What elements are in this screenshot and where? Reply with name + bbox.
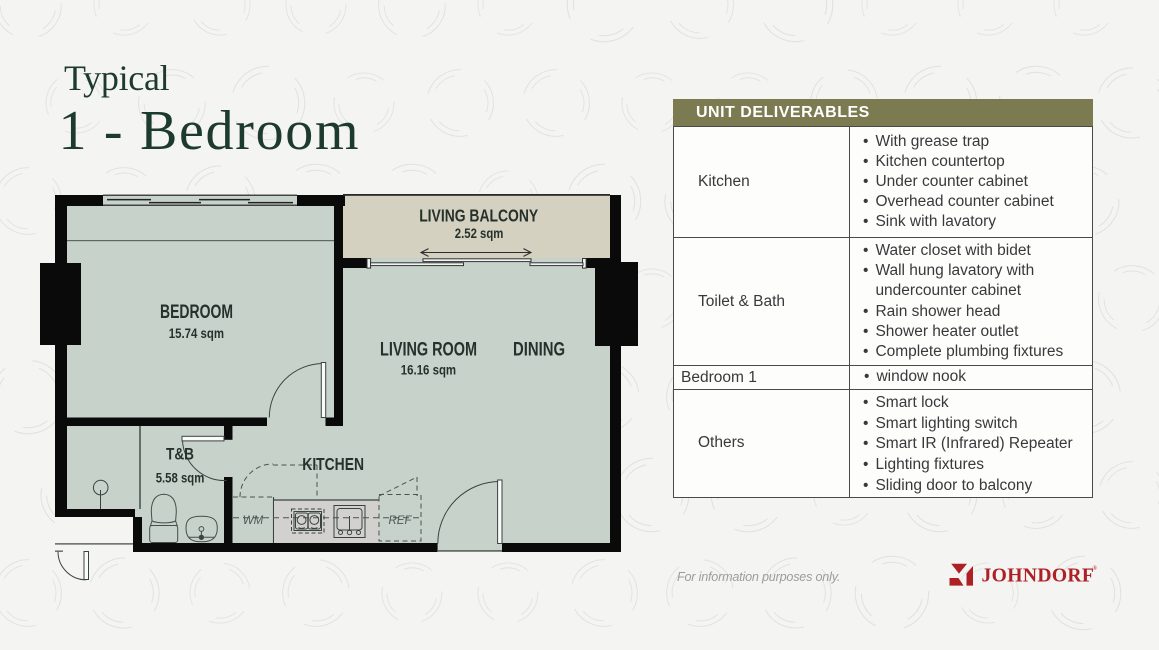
- svg-text:2.52 sqm: 2.52 sqm: [455, 226, 504, 241]
- svg-text:DINING: DINING: [513, 339, 565, 361]
- svg-text:®: ®: [1093, 565, 1098, 572]
- svg-text:WM: WM: [243, 515, 264, 527]
- svg-text:LIVING BALCONY: LIVING BALCONY: [419, 205, 538, 225]
- svg-text:LIVING ROOM: LIVING ROOM: [380, 339, 477, 361]
- svg-text:BEDROOM: BEDROOM: [160, 301, 233, 323]
- svg-text:5.58 sqm: 5.58 sqm: [156, 470, 205, 485]
- svg-text:REF: REF: [389, 515, 413, 527]
- svg-text:T&B: T&B: [166, 446, 194, 464]
- svg-text:JOHNDORF: JOHNDORF: [982, 566, 1095, 587]
- svg-text:16.16 sqm: 16.16 sqm: [401, 363, 456, 378]
- svg-text:15.74 sqm: 15.74 sqm: [169, 326, 224, 341]
- svg-text:KITCHEN: KITCHEN: [302, 454, 364, 474]
